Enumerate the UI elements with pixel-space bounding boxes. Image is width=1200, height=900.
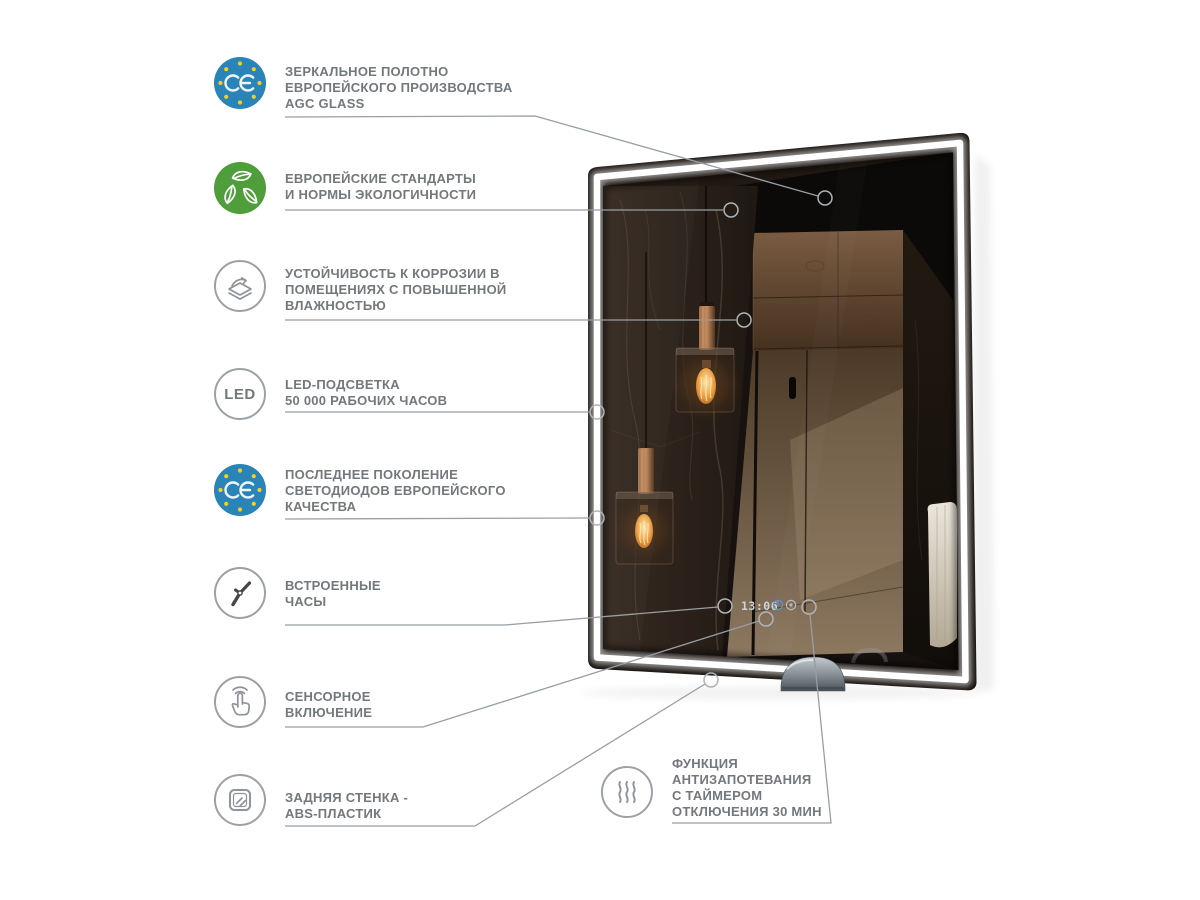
steam-icon [601, 766, 653, 818]
feature-caption-touch: СЕНСОРНОЕ ВКЛЮЧЕНИЕ [285, 689, 372, 721]
touch-icon [214, 676, 266, 728]
clock-time: 13:06 [741, 599, 778, 613]
caption-line: ЧАСЫ [285, 594, 381, 610]
infographic-canvas: 13:06 [0, 0, 1200, 900]
corrosion-layers-icon [214, 260, 266, 312]
mirror-scene: 13:06 [0, 0, 1200, 900]
caption-line: ПОСЛЕДНЕЕ ПОКОЛЕНИЕ [285, 467, 506, 483]
feature-caption-diodes: ПОСЛЕДНЕЕ ПОКОЛЕНИЕ СВЕТОДИОДОВ ЕВРОПЕЙС… [285, 467, 506, 515]
towel [928, 502, 957, 647]
caption-line: И НОРМЫ ЭКОЛОГИЧНОСТИ [285, 187, 476, 203]
mirror: 13:06 [580, 133, 980, 691]
caption-line: ВСТРОЕННЫЕ [285, 578, 381, 594]
caption-line: ОТКЛЮЧЕНИЯ 30 МИН [672, 804, 822, 820]
abs-panel-icon [214, 774, 266, 826]
caption-line: ВЛАЖНОСТЬЮ [285, 298, 507, 314]
caption-line: AGC GLASS [285, 96, 512, 112]
caption-line: С ТАЙМЕРОМ [672, 788, 822, 804]
feature-caption-corrosion: УСТОЙЧИВОСТЬ К КОРРОЗИИ В ПОМЕЩЕНИЯХ С П… [285, 266, 507, 314]
caption-line: 50 000 РАБОЧИХ ЧАСОВ [285, 393, 447, 409]
feature-caption-back-panel: ЗАДНЯЯ СТЕНКА - ABS-ПЛАСТИК [285, 790, 408, 822]
clock-icon [214, 567, 266, 619]
caption-line: ABS-ПЛАСТИК [285, 806, 408, 822]
caption-line: СВЕТОДИОДОВ ЕВРОПЕЙСКОГО [285, 483, 506, 499]
feature-caption-led: LED-ПОДСВЕТКА 50 000 РАБОЧИХ ЧАСОВ [285, 377, 447, 409]
caption-line: ЕВРОПЕЙСКИЕ СТАНДАРТЫ [285, 171, 476, 187]
caption-line: АНТИЗАПОТЕВАНИЯ [672, 772, 822, 788]
caption-line: LED-ПОДСВЕТКА [285, 377, 447, 393]
feature-caption-eco: ЕВРОПЕЙСКИЕ СТАНДАРТЫ И НОРМЫ ЭКОЛОГИЧНО… [285, 171, 476, 203]
caption-line: ВКЛЮЧЕНИЕ [285, 705, 372, 721]
feature-caption-mirror-canvas: ЗЕРКАЛЬНОЕ ПОЛОТНО ЕВРОПЕЙСКОГО ПРОИЗВОД… [285, 64, 512, 112]
caption-line: ПОМЕЩЕНИЯХ С ПОВЫШЕННОЙ [285, 282, 507, 298]
caption-line: УСТОЙЧИВОСТЬ К КОРРОЗИИ В [285, 266, 507, 282]
led-label: LED [224, 386, 256, 403]
feature-caption-antifog: ФУНКЦИЯ АНТИЗАПОТЕВАНИЯ С ТАЙМЕРОМ ОТКЛЮ… [672, 756, 822, 820]
ce-badge-icon [214, 464, 266, 516]
feature-caption-clock: ВСТРОЕННЫЕ ЧАСЫ [285, 578, 381, 610]
caption-line: КАЧЕСТВА [285, 499, 506, 515]
caption-line: ЕВРОПЕЙСКОГО ПРОИЗВОДСТВА [285, 80, 512, 96]
callout-line-diodes [285, 518, 589, 519]
eco-leaves-icon [214, 162, 266, 214]
led-icon: LED [214, 368, 266, 420]
door-handle [789, 377, 796, 399]
caption-line: СЕНСОРНОЕ [285, 689, 372, 705]
caption-line: ЗАДНЯЯ СТЕНКА - [285, 790, 408, 806]
caption-line: ФУНКЦИЯ [672, 756, 822, 772]
caption-line: ЗЕРКАЛЬНОЕ ПОЛОТНО [285, 64, 512, 80]
mirror-glass: 13:06 [580, 140, 980, 685]
ce-badge-icon [214, 57, 266, 109]
